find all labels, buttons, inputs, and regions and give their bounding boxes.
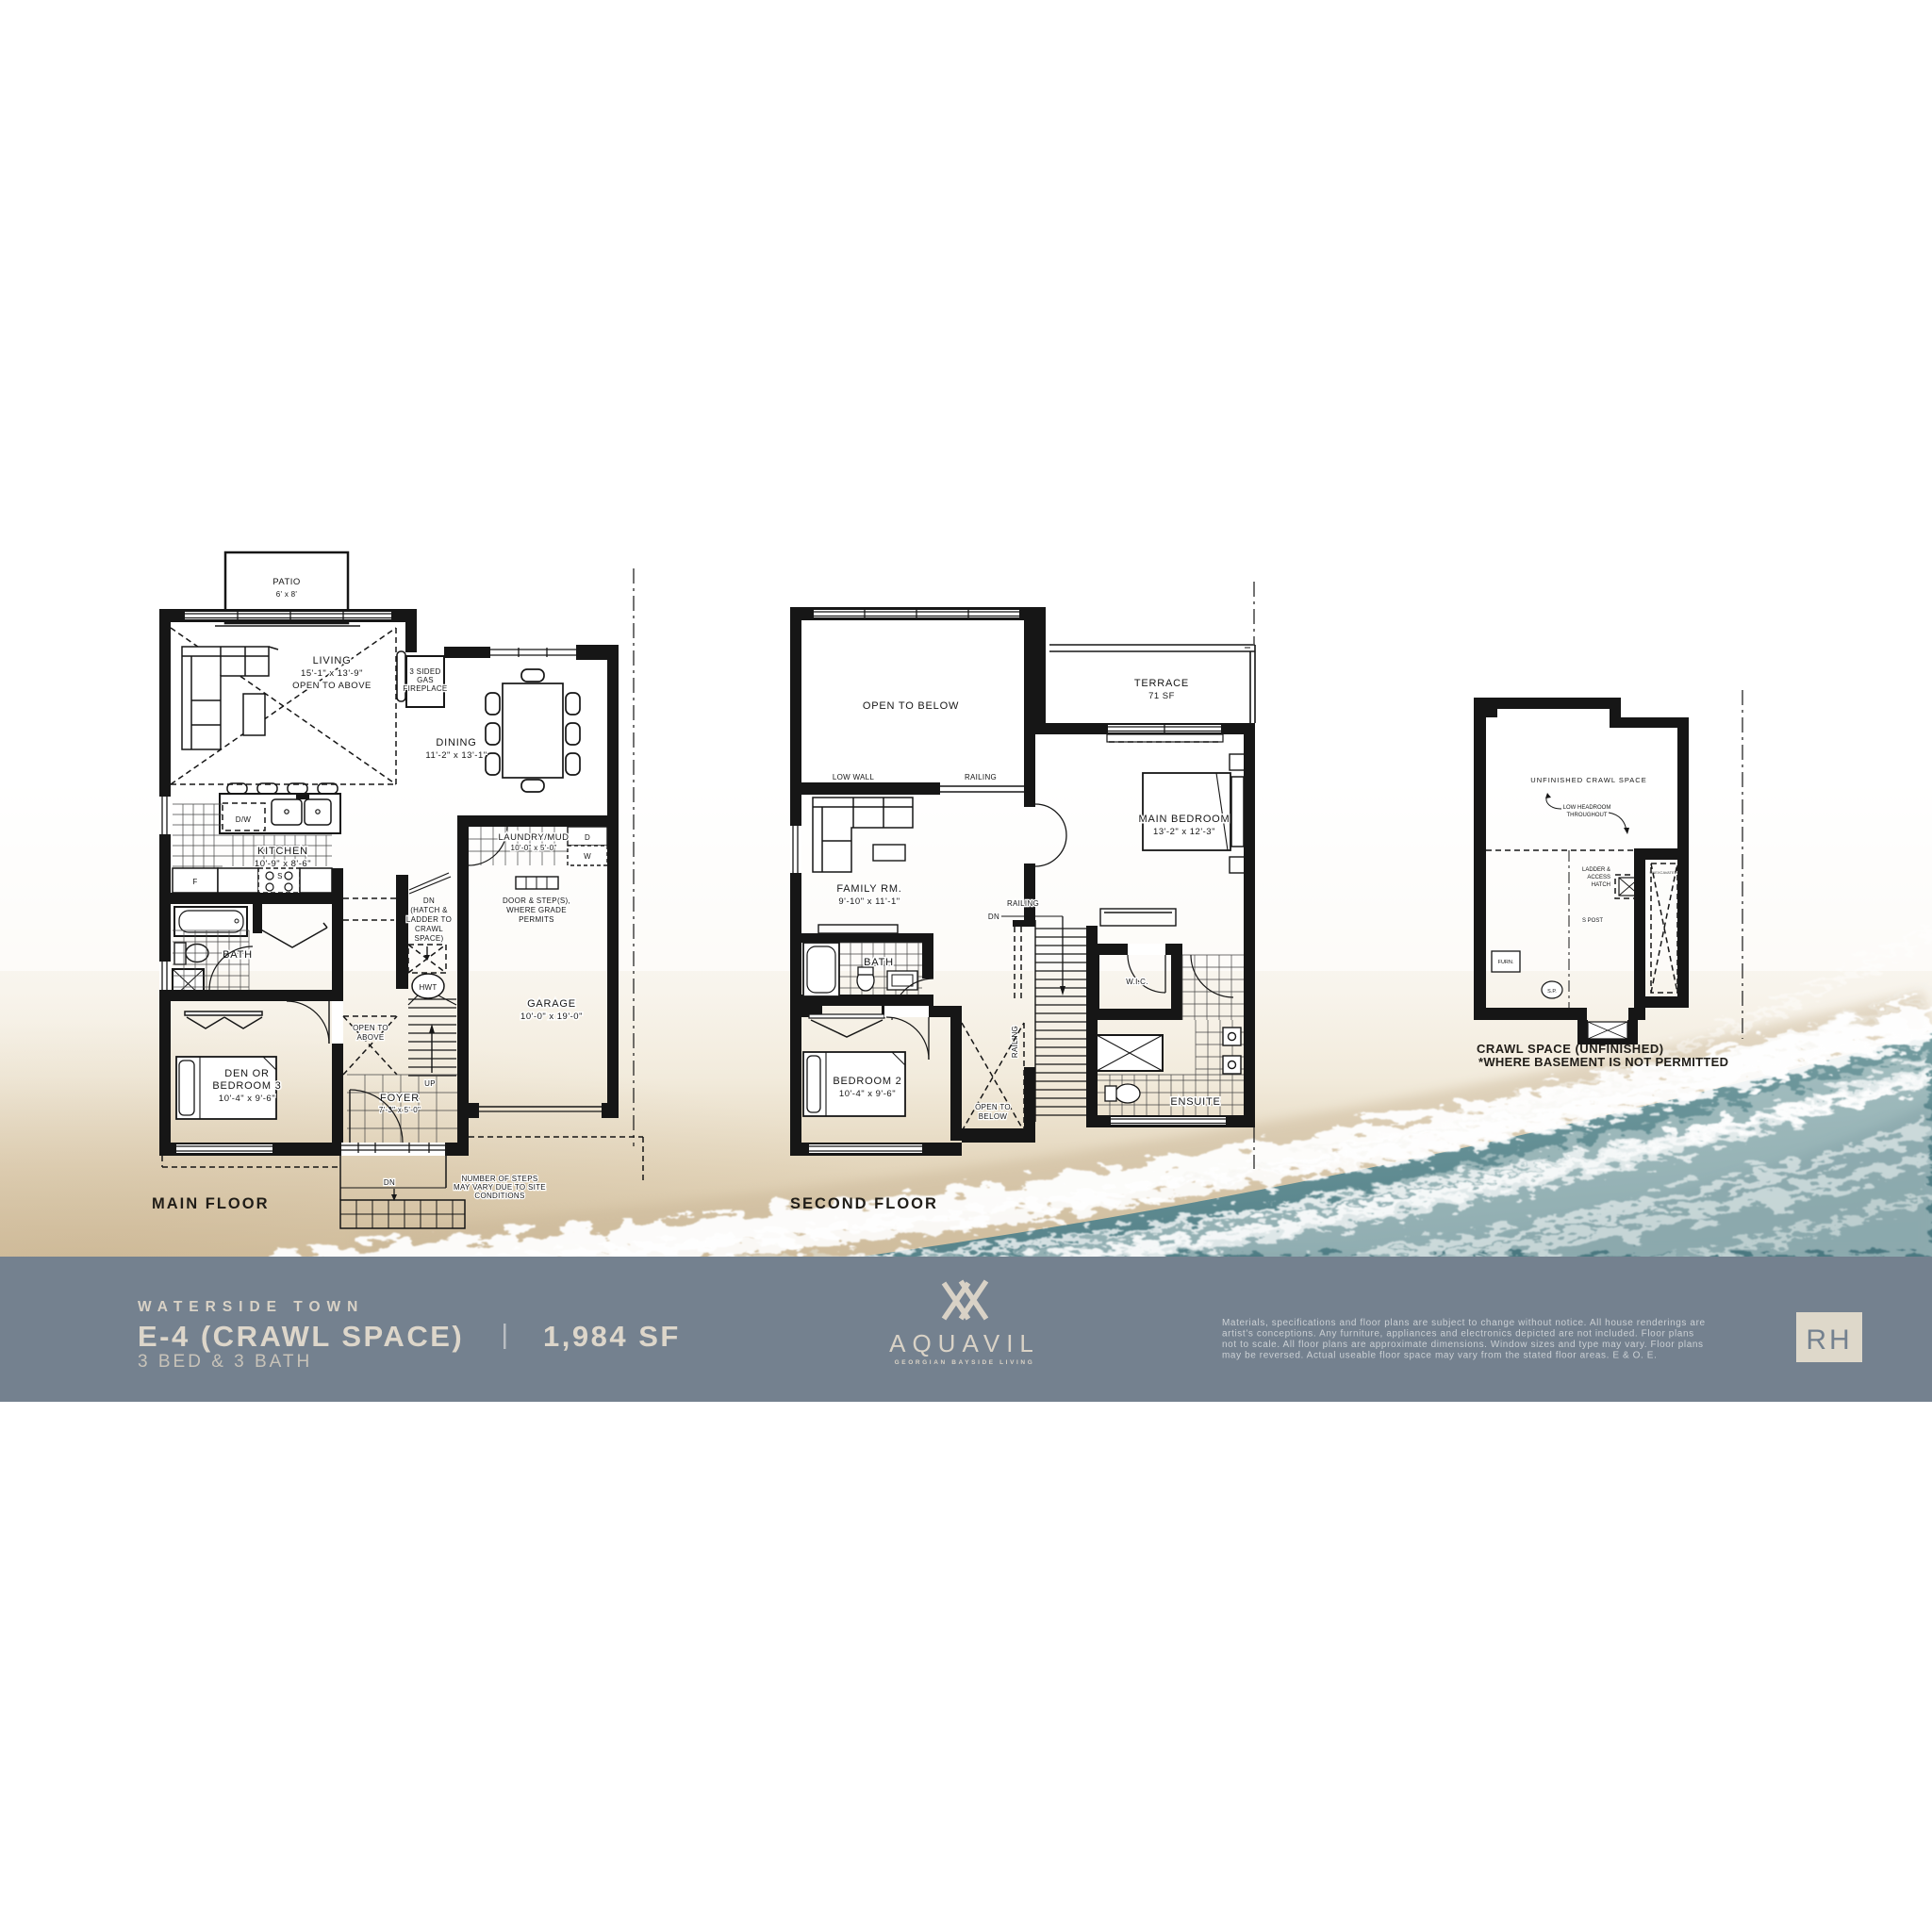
- svg-text:LIVING: LIVING: [313, 655, 352, 666]
- svg-text:MAIN FLOOR: MAIN FLOOR: [152, 1195, 270, 1212]
- svg-text:WHERE GRADE: WHERE GRADE: [506, 906, 567, 914]
- svg-text:FOYER: FOYER: [380, 1093, 420, 1104]
- svg-text:10'-4" x 9'-6": 10'-4" x 9'-6": [839, 1089, 896, 1099]
- svg-text:HATCH: HATCH: [1592, 882, 1610, 888]
- svg-text:FURN.: FURN.: [1498, 960, 1514, 965]
- svg-text:10'-0" x 5'-0": 10'-0" x 5'-0": [511, 844, 557, 852]
- svg-text:OPEN TO: OPEN TO: [353, 1024, 388, 1032]
- svg-text:KITCHEN: KITCHEN: [257, 846, 308, 857]
- svg-text:1,984 SF: 1,984 SF: [543, 1320, 681, 1353]
- svg-text:UP: UP: [424, 1079, 436, 1088]
- svg-text:MAY VARY DUE TO SITE: MAY VARY DUE TO SITE: [454, 1183, 546, 1192]
- svg-text:S POST: S POST: [1582, 918, 1603, 924]
- svg-text:LADDER &: LADDER &: [1582, 867, 1610, 873]
- svg-text:artist’s conceptions. Any furn: artist’s conceptions. Any furniture, app…: [1222, 1329, 1694, 1340]
- svg-text:CONDITIONS: CONDITIONS: [474, 1192, 524, 1200]
- svg-text:W: W: [584, 852, 591, 861]
- svg-text:LOW WALL: LOW WALL: [833, 773, 875, 781]
- svg-text:LADDER TO: LADDER TO: [406, 915, 452, 924]
- svg-text:DOOR & STEP(S),: DOOR & STEP(S),: [503, 896, 570, 905]
- svg-text:DINING: DINING: [436, 737, 476, 748]
- svg-text:TERRACE: TERRACE: [1134, 678, 1189, 689]
- svg-text:3 BED & 3 BATH: 3 BED & 3 BATH: [138, 1352, 312, 1372]
- svg-text:D/W: D/W: [236, 815, 252, 824]
- svg-text:ENSUITE: ENSUITE: [1170, 1096, 1220, 1108]
- svg-text:SECOND FLOOR: SECOND FLOOR: [790, 1195, 938, 1212]
- svg-text:may be reversed. Actual useabl: may be reversed. Actual useable floor sp…: [1222, 1351, 1657, 1361]
- svg-text:BEDROOM 3: BEDROOM 3: [212, 1080, 281, 1092]
- svg-text:DN: DN: [384, 1178, 395, 1187]
- svg-text:W.I.C.: W.I.C.: [1126, 978, 1148, 986]
- svg-text:OPEN TO: OPEN TO: [975, 1103, 1011, 1111]
- svg-text:RAILING: RAILING: [1011, 1026, 1019, 1058]
- svg-text:DEN OR: DEN OR: [224, 1068, 270, 1079]
- svg-text:S: S: [277, 872, 283, 880]
- svg-text:THROUGHOUT: THROUGHOUT: [1567, 813, 1608, 818]
- svg-text:S.P.: S.P.: [1547, 989, 1557, 995]
- svg-text:*WHERE BASEMENT IS NOT PERMITT: *WHERE BASEMENT IS NOT PERMITTED: [1478, 1055, 1728, 1069]
- svg-text:71 SF: 71 SF: [1148, 691, 1175, 701]
- svg-text:BELOW: BELOW: [979, 1112, 1008, 1121]
- svg-text:3 SIDED: 3 SIDED: [409, 667, 440, 676]
- svg-text:D: D: [585, 833, 590, 842]
- svg-text:9'-10" x 11'-1": 9'-10" x 11'-1": [838, 896, 900, 907]
- svg-text:ACCESS: ACCESS: [1587, 875, 1610, 880]
- svg-text:15'-1" x 13'-9": 15'-1" x 13'-9": [301, 668, 363, 679]
- svg-text:7'-3" x 5'-0": 7'-3" x 5'-0": [379, 1106, 421, 1114]
- svg-text:RAILING: RAILING: [1007, 899, 1039, 908]
- svg-text:SPACE): SPACE): [415, 934, 444, 943]
- svg-text:NUMBER OF STEPS: NUMBER OF STEPS: [462, 1175, 538, 1183]
- svg-text:DN: DN: [423, 896, 435, 905]
- svg-text:E-4 (CRAWL SPACE): E-4 (CRAWL SPACE): [138, 1320, 464, 1353]
- svg-text:PERMITS: PERMITS: [519, 915, 554, 924]
- svg-text:BATH: BATH: [864, 957, 894, 968]
- svg-text:LOW HEADROOM: LOW HEADROOM: [1563, 805, 1611, 811]
- svg-text:WATERSIDE TOWN: WATERSIDE TOWN: [138, 1299, 364, 1315]
- svg-text:Materials, specifications and: Materials, specifications and floor plan…: [1222, 1318, 1706, 1328]
- svg-text:UNEXCAVATED: UNEXCAVATED: [1649, 870, 1676, 875]
- svg-text:FAMILY RM.: FAMILY RM.: [836, 883, 901, 895]
- svg-text:GARAGE: GARAGE: [527, 998, 576, 1010]
- svg-text:10'-4" x 9'-6": 10'-4" x 9'-6": [219, 1094, 275, 1104]
- svg-text:RAILING: RAILING: [965, 773, 997, 781]
- svg-text:BEDROOM 2: BEDROOM 2: [833, 1076, 901, 1087]
- svg-text:6' x 8': 6' x 8': [276, 590, 298, 599]
- svg-text:ABOVE: ABOVE: [356, 1033, 384, 1042]
- svg-text:OPEN TO BELOW: OPEN TO BELOW: [863, 700, 959, 712]
- svg-text:FIREPLACE: FIREPLACE: [403, 684, 447, 693]
- svg-text:LAUNDRY/MUD: LAUNDRY/MUD: [498, 832, 569, 843]
- svg-text:CRAWL SPACE (UNFINISHED): CRAWL SPACE (UNFINISHED): [1477, 1042, 1664, 1056]
- svg-text:13'-2" x 12'-3": 13'-2" x 12'-3": [1153, 827, 1215, 837]
- svg-text:GEORGIAN BAYSIDE LIVING: GEORGIAN BAYSIDE LIVING: [895, 1359, 1035, 1366]
- svg-text:F: F: [192, 878, 197, 886]
- svg-text:OPEN TO ABOVE: OPEN TO ABOVE: [292, 681, 372, 691]
- svg-text:CRAWL: CRAWL: [415, 925, 443, 933]
- svg-text:(HATCH &: (HATCH &: [410, 906, 448, 914]
- svg-text:HWT: HWT: [419, 983, 437, 992]
- svg-text:RH: RH: [1806, 1324, 1852, 1356]
- svg-text:DN: DN: [988, 913, 999, 921]
- svg-text:MAIN BEDROOM: MAIN BEDROOM: [1139, 814, 1230, 825]
- svg-text:11'-2" x 13'-1": 11'-2" x 13'-1": [425, 750, 487, 761]
- svg-text:UNFINISHED CRAWL SPACE: UNFINISHED CRAWL SPACE: [1530, 776, 1646, 784]
- svg-text:10'-0" x 19'-0": 10'-0" x 19'-0": [520, 1012, 583, 1022]
- svg-text:not to scale. All floor plans: not to scale. All floor plans are approx…: [1222, 1340, 1704, 1350]
- svg-text:PATIO: PATIO: [272, 577, 301, 587]
- svg-text:AQUAVIL: AQUAVIL: [889, 1329, 1040, 1357]
- svg-text:GAS: GAS: [417, 676, 434, 684]
